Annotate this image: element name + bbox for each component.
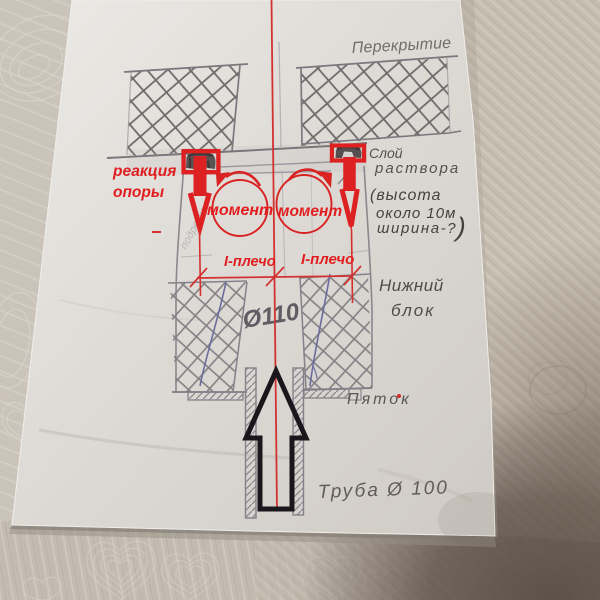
svg-text:Нижний: Нижний [379, 276, 444, 295]
svg-text:I-плечо: I-плечо [301, 251, 354, 268]
svg-text:опоры: опоры [113, 184, 164, 201]
svg-text:раствора: раствора [374, 160, 460, 177]
svg-text:(высота: (высота [370, 187, 441, 204]
svg-text:I-плечо: I-плечо [224, 254, 276, 270]
svg-text:ширина-?: ширина-? [377, 220, 457, 237]
svg-text:момент: момент [207, 202, 273, 219]
svg-text:Пяток: Пяток [347, 391, 412, 408]
svg-text:блок: блок [391, 301, 435, 320]
svg-text:момент: момент [278, 203, 342, 220]
svg-text:Слой: Слой [369, 145, 403, 161]
svg-text:реакция: реакция [112, 163, 176, 180]
